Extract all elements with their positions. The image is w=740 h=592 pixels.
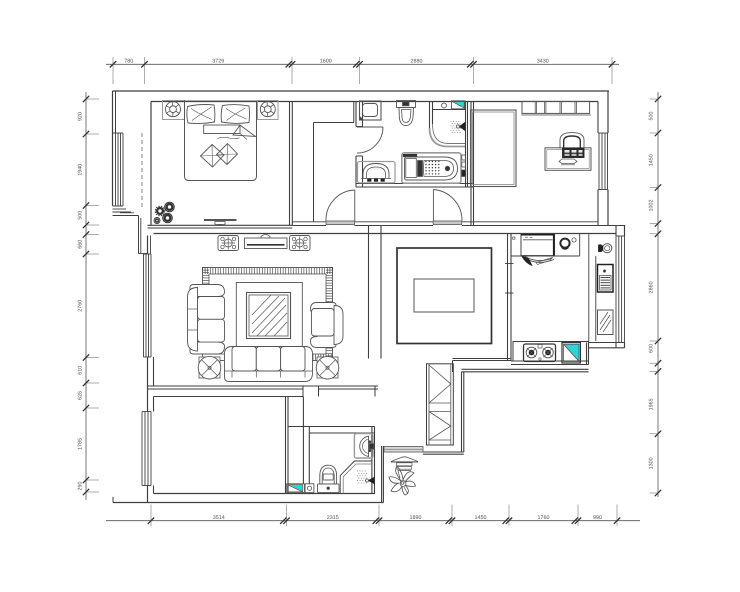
svg-text:2315: 2315 <box>327 515 339 521</box>
svg-text:2860: 2860 <box>649 281 655 293</box>
svg-text:3430: 3430 <box>537 59 549 65</box>
svg-text:1300: 1300 <box>649 457 655 469</box>
svg-text:1002: 1002 <box>649 200 655 212</box>
svg-text:1450: 1450 <box>475 515 487 521</box>
svg-text:1940: 1940 <box>78 164 84 176</box>
svg-text:1785: 1785 <box>78 438 84 450</box>
svg-text:990: 990 <box>593 515 602 521</box>
svg-text:625: 625 <box>78 391 84 400</box>
svg-text:2760: 2760 <box>78 300 84 312</box>
svg-text:1890: 1890 <box>410 515 422 521</box>
svg-text:1600: 1600 <box>320 59 332 65</box>
svg-text:920: 920 <box>78 112 84 121</box>
svg-text:600: 600 <box>649 344 655 353</box>
svg-text:500: 500 <box>78 211 84 220</box>
svg-text:1450: 1450 <box>649 154 655 166</box>
svg-text:290: 290 <box>78 482 84 491</box>
svg-text:1965: 1965 <box>649 398 655 410</box>
svg-text:660: 660 <box>78 240 84 249</box>
svg-text:1760: 1760 <box>538 515 550 521</box>
svg-text:3729: 3729 <box>212 59 224 65</box>
svg-text:610: 610 <box>78 366 84 375</box>
svg-text:3514: 3514 <box>213 515 225 521</box>
svg-text:2880: 2880 <box>411 59 423 65</box>
svg-text:500: 500 <box>649 112 655 121</box>
svg-text:780: 780 <box>124 59 133 65</box>
